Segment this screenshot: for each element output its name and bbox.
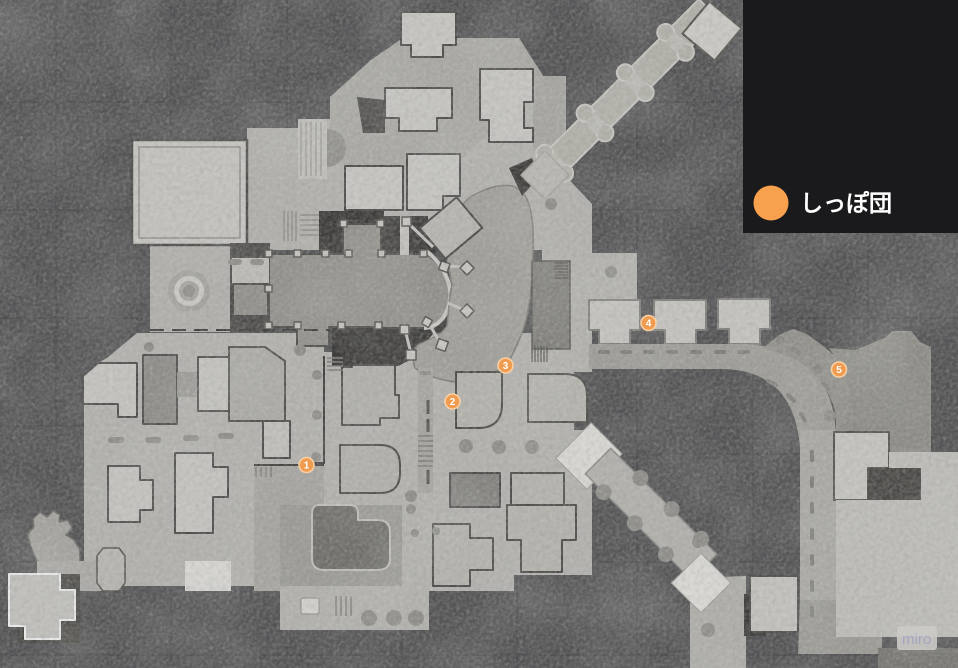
- svg-text:miro: miro: [902, 631, 931, 648]
- svg-text:2: 2: [450, 397, 456, 408]
- svg-text:5: 5: [836, 365, 842, 376]
- svg-text:3: 3: [503, 361, 509, 372]
- svg-text:しっぽ団: しっぽ団: [800, 190, 892, 216]
- svg-text:4: 4: [646, 319, 652, 330]
- svg-text:1: 1: [304, 461, 310, 472]
